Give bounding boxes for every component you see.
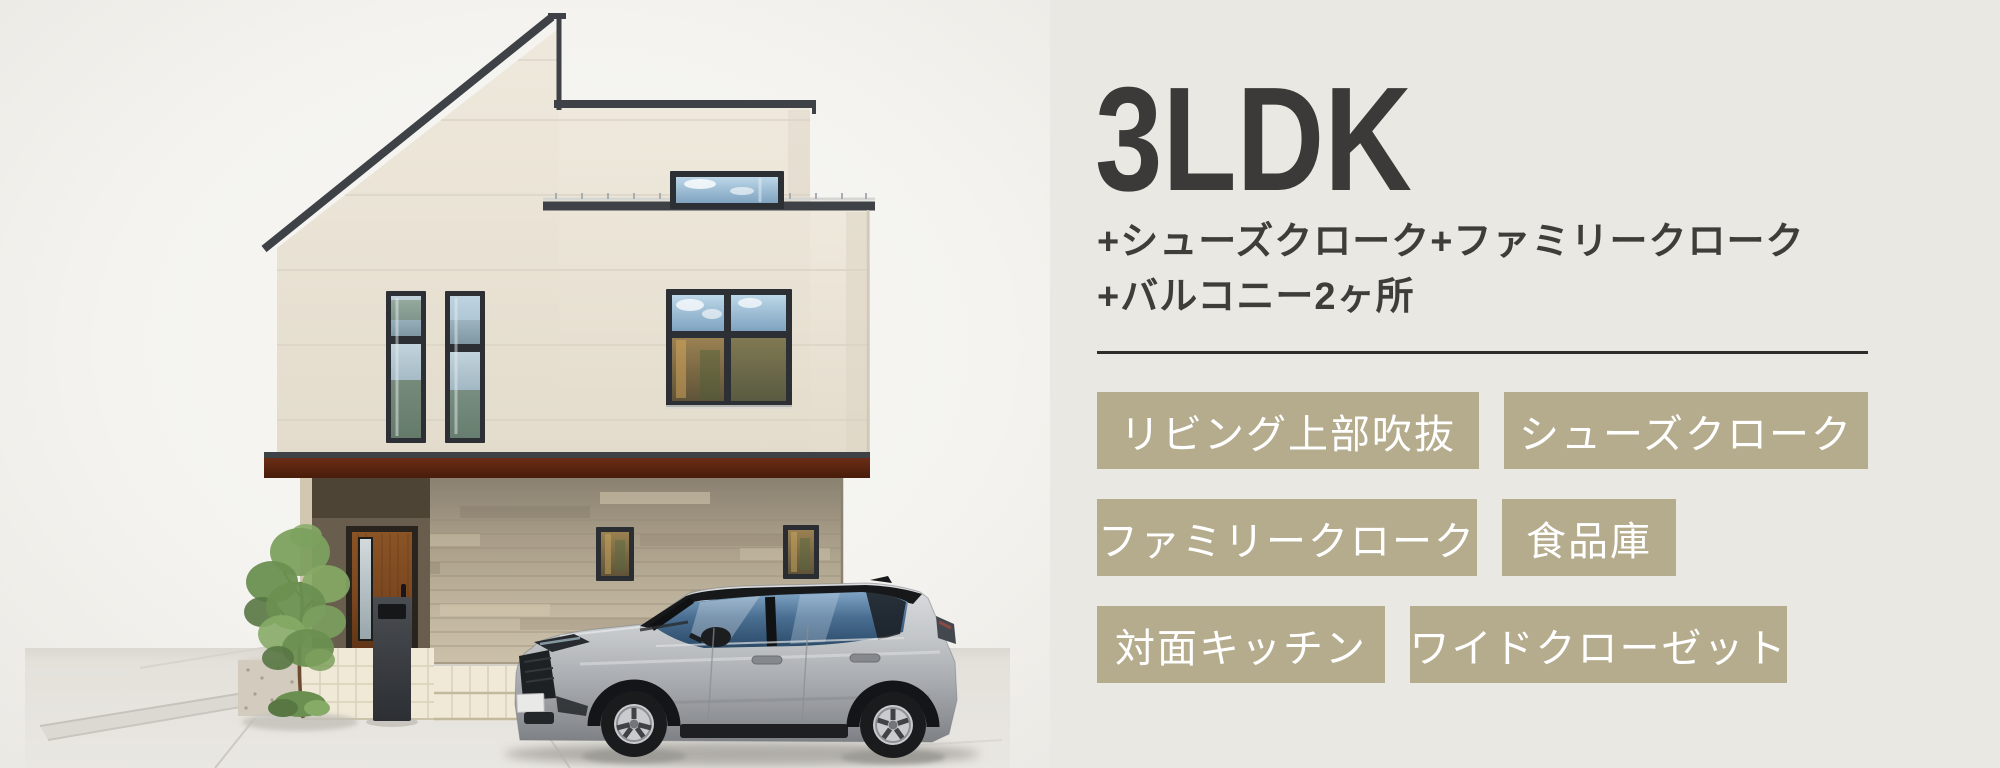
badge-counter-kitchen: 対面キッチン — [1097, 606, 1385, 683]
page-title: 3LDK — [1095, 66, 1412, 214]
window-2f-narrow-1 — [386, 291, 426, 443]
side-mirror — [701, 627, 731, 647]
window-3f — [670, 171, 784, 209]
badge-shoes-closet: シューズクローク — [1504, 392, 1868, 469]
window-1f-small-2 — [783, 525, 819, 579]
license-plate — [517, 694, 545, 713]
window-2f-large — [666, 289, 792, 409]
badge-row-2: ファミリークローク 食品庫 — [1097, 499, 1868, 576]
delivery-post — [366, 597, 418, 727]
plan-subtitle: +シューズクローク+ファミリークローク +バルコニー2ヶ所 — [1097, 215, 1805, 325]
house-photo — [0, 0, 1050, 768]
door-handle-front — [752, 656, 782, 664]
mail-slot — [378, 604, 406, 619]
badge-living-void: リビング上部吹抜 — [1097, 392, 1479, 469]
badge-wide-closet: ワイドクローゼット — [1410, 606, 1787, 683]
window-1f-small-1 — [596, 527, 634, 581]
promo-banner: 3LDK +シューズクローク+ファミリークローク +バルコニー2ヶ所 リビング上… — [0, 0, 2000, 768]
subtitle-line-2: +バルコニー2ヶ所 — [1097, 270, 1805, 325]
badge-family-closet: ファミリークローク — [1097, 499, 1477, 576]
divider-line — [1097, 351, 1868, 354]
door-handle-rear — [850, 654, 880, 662]
badge-row-3: 対面キッチン ワイドクローゼット — [1097, 606, 1868, 683]
feature-badges: リビング上部吹抜 シューズクローク ファミリークローク 食品庫 対面キッチン ワ… — [1097, 392, 1868, 713]
front-wheel — [601, 691, 667, 757]
rear-wheel — [860, 692, 926, 758]
door-glass-slit — [359, 538, 372, 640]
badge-row-1: リビング上部吹抜 シューズクローク — [1097, 392, 1868, 469]
subtitle-line-1: +シューズクローク+ファミリークローク — [1097, 215, 1805, 270]
window-2f-narrow-2 — [445, 291, 485, 443]
badge-pantry: 食品庫 — [1502, 499, 1676, 576]
